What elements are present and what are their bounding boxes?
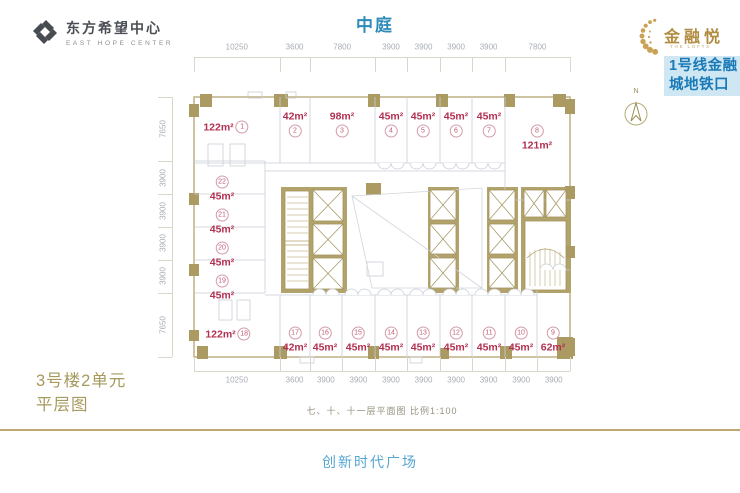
plaza-label: 创新时代广场	[0, 452, 740, 472]
unit-title: 3号楼2单元 平层图	[36, 369, 126, 417]
unit-title-line2: 平层图	[36, 393, 126, 417]
floorplan-page: 东方希望中心 EAST HOPE CENTER 中庭 金融悦 THE LOFTS…	[0, 0, 740, 493]
unit-title-line1: 3号楼2单元	[36, 369, 126, 393]
gold-divider	[0, 429, 740, 431]
floorplan-drawing	[0, 0, 740, 493]
plan-caption: 七、十、十一层平面图 比例1:100	[194, 404, 570, 417]
